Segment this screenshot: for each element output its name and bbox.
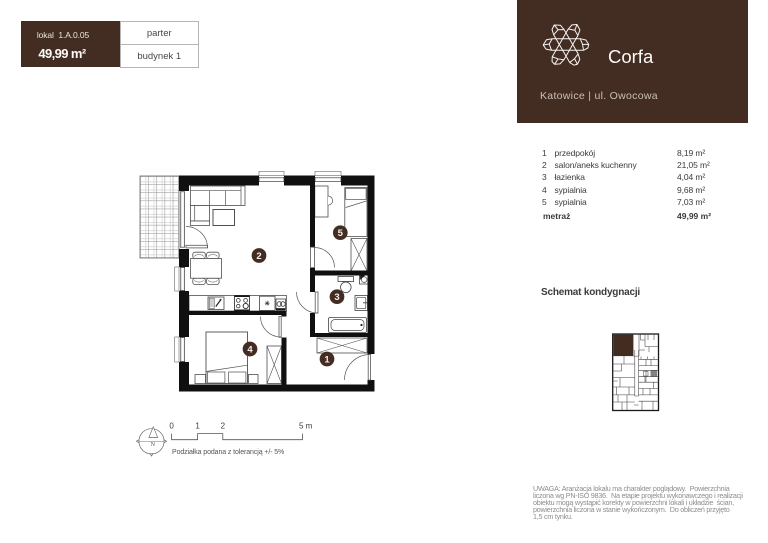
svg-text:5: 5 (338, 228, 344, 239)
svg-text:3: 3 (334, 292, 339, 303)
svg-text:2: 2 (256, 251, 261, 262)
svg-text:0: 0 (169, 422, 174, 431)
svg-text:5 m: 5 m (299, 422, 313, 431)
svg-text:2: 2 (221, 422, 226, 431)
svg-text:1: 1 (324, 354, 330, 365)
svg-text:Podziałka podana z tolerancją: Podziałka podana z tolerancją +/- 5% (172, 449, 284, 456)
svg-text:1: 1 (195, 422, 200, 431)
svg-text:4: 4 (247, 344, 253, 355)
svg-text:N: N (151, 442, 156, 448)
